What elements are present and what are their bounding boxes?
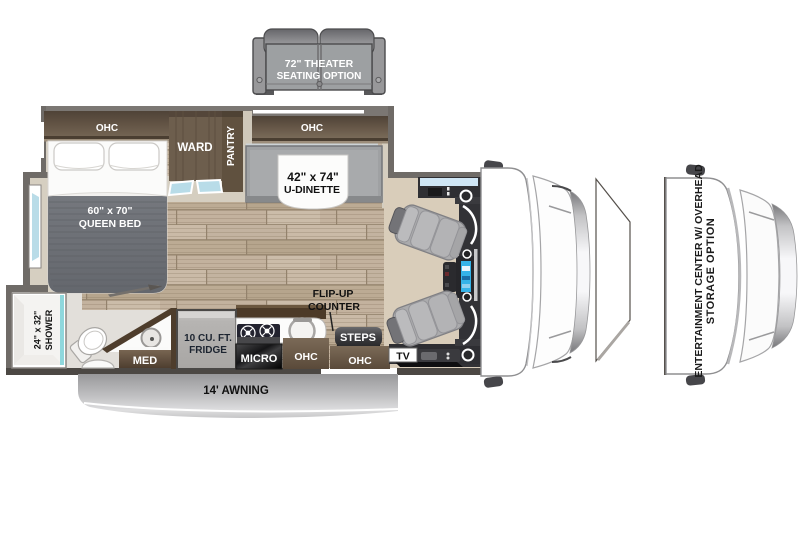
svg-text:OHC: OHC bbox=[301, 123, 323, 134]
svg-text:OHC: OHC bbox=[96, 123, 118, 134]
svg-text:42" x 74": 42" x 74" bbox=[287, 170, 338, 184]
svg-text:COUNTER: COUNTER bbox=[308, 301, 360, 313]
svg-text:FLIP-UP: FLIP-UP bbox=[313, 288, 354, 300]
svg-text:OHC: OHC bbox=[348, 355, 372, 367]
svg-text:14' AWNING: 14' AWNING bbox=[203, 385, 269, 397]
svg-text:U-DINETTE: U-DINETTE bbox=[284, 184, 340, 196]
svg-text:MICRO: MICRO bbox=[241, 353, 278, 365]
svg-text:SEATING OPTION: SEATING OPTION bbox=[277, 71, 362, 82]
svg-text:10 CU. FT.: 10 CU. FT. bbox=[184, 333, 232, 344]
svg-text:TV: TV bbox=[396, 351, 409, 363]
svg-text:60" x 70": 60" x 70" bbox=[88, 205, 133, 217]
svg-text:FRIDGE: FRIDGE bbox=[189, 345, 227, 356]
svg-text:WARD: WARD bbox=[177, 142, 212, 154]
svg-text:72" THEATER: 72" THEATER bbox=[285, 58, 354, 70]
svg-text:PANTRY: PANTRY bbox=[226, 126, 237, 166]
svg-text:STEPS: STEPS bbox=[340, 332, 376, 344]
svg-text:SHOWER: SHOWER bbox=[44, 309, 54, 350]
svg-text:24" x 32": 24" x 32" bbox=[33, 311, 43, 350]
svg-text:QUEEN BED: QUEEN BED bbox=[79, 218, 142, 230]
svg-text:OHC: OHC bbox=[294, 351, 318, 363]
svg-text:ENTERTAINMENT CENTER W/ OVERHE: ENTERTAINMENT CENTER W/ OVERHEAD bbox=[693, 164, 705, 378]
svg-text:STORAGE OPTION: STORAGE OPTION bbox=[705, 218, 717, 324]
svg-text:MED: MED bbox=[133, 355, 158, 367]
